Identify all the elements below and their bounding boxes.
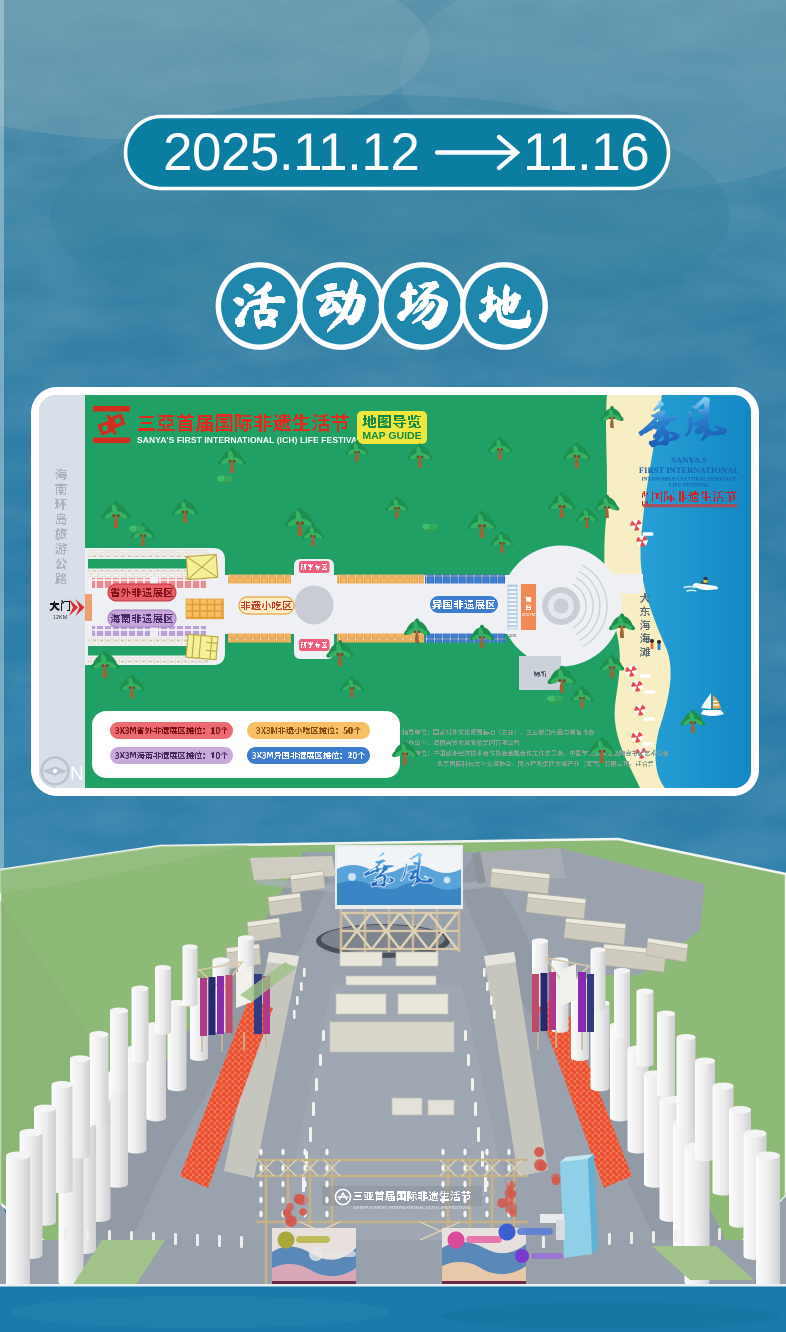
svg-text:N: N [70,764,84,785]
svg-text:20X7M: 20X7M [522,612,536,617]
svg-text:SANYA'S FIRST INTERNATIONAL (I: SANYA'S FIRST INTERNATIONAL (ICH) LIFE F… [137,435,363,445]
svg-text:2025.11.12: 2025.11.12 [163,123,419,182]
svg-text:SANYA'S FIRST INTERNATIONAL (I: SANYA'S FIRST INTERNATIONAL (ICH) LIFE F… [353,1205,470,1210]
svg-text:100: 100 [509,633,517,638]
svg-text:11.16: 11.16 [523,123,649,182]
svg-text:SANYA.S: SANYA.S [671,455,707,465]
svg-text:12KM: 12KM [53,615,68,621]
svg-text:MAP GUIDE: MAP GUIDE [362,430,421,442]
svg-text:LIFE FESTIVAL: LIFE FESTIVAL [669,483,710,489]
svg-text:FIRST INTERNATIONAL: FIRST INTERNATIONAL [639,465,739,475]
